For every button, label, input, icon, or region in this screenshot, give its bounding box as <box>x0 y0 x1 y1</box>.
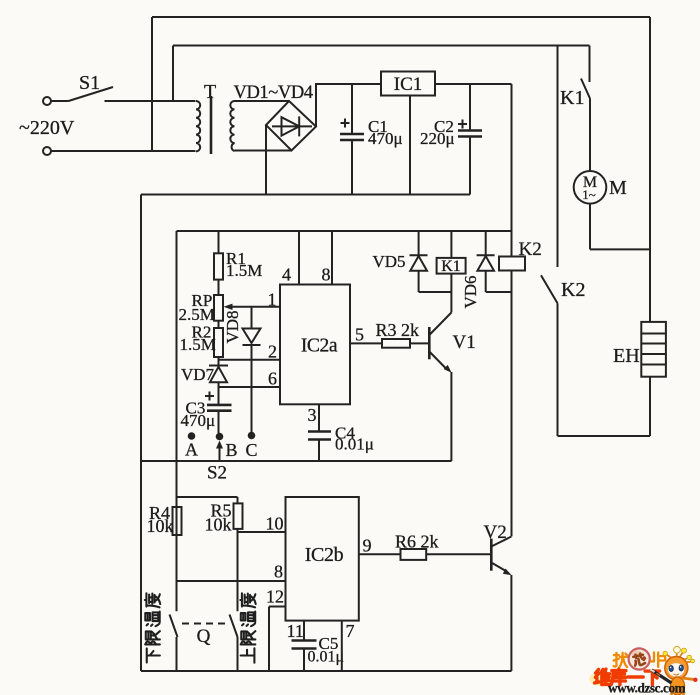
svg-text:470μ: 470μ <box>368 129 403 148</box>
svg-text:B: B <box>225 440 237 460</box>
svg-text:C: C <box>245 440 257 460</box>
svg-text:10k: 10k <box>205 515 232 535</box>
svg-text:K2: K2 <box>519 239 542 260</box>
svg-text:VD5: VD5 <box>373 252 406 271</box>
svg-text:11: 11 <box>287 621 304 641</box>
svg-text:0.01μ: 0.01μ <box>308 649 345 666</box>
svg-text:IC1: IC1 <box>394 74 423 95</box>
svg-text:S1: S1 <box>79 72 100 94</box>
svg-text:12: 12 <box>266 587 284 607</box>
svg-text:9: 9 <box>363 536 372 556</box>
svg-text:A: A <box>185 440 198 460</box>
svg-text:T: T <box>204 81 216 103</box>
svg-text:2: 2 <box>268 342 277 362</box>
svg-text:Q: Q <box>197 626 211 647</box>
svg-text:2.5M: 2.5M <box>179 305 215 324</box>
svg-text:4: 4 <box>282 265 291 285</box>
svg-text:EH: EH <box>613 345 640 367</box>
svg-text:www.dzsc.com: www.dzsc.com <box>608 681 686 695</box>
svg-text:R3 2k: R3 2k <box>376 320 420 340</box>
svg-text:10: 10 <box>266 514 284 534</box>
svg-text:470μ: 470μ <box>181 411 216 430</box>
svg-text:~220V: ~220V <box>19 117 75 139</box>
svg-text:5: 5 <box>355 325 364 345</box>
svg-text:IC2a: IC2a <box>301 336 338 357</box>
svg-text:IC2b: IC2b <box>305 544 344 566</box>
svg-text:S2: S2 <box>207 463 227 484</box>
svg-text:7: 7 <box>346 621 355 641</box>
svg-text:3: 3 <box>308 405 317 425</box>
svg-text:K2: K2 <box>561 279 585 301</box>
svg-text:0.01μ: 0.01μ <box>335 435 374 454</box>
svg-text:10k: 10k <box>147 516 174 536</box>
svg-text:1.5M: 1.5M <box>180 335 216 354</box>
svg-text:220μ: 220μ <box>420 129 455 148</box>
svg-text:VD7: VD7 <box>181 365 215 384</box>
svg-text:V2: V2 <box>484 522 507 543</box>
svg-text:1~: 1~ <box>582 187 596 202</box>
svg-text:V1: V1 <box>453 332 476 353</box>
svg-text:R6 2k: R6 2k <box>395 532 439 552</box>
svg-text:VD1~VD4: VD1~VD4 <box>234 83 313 103</box>
svg-text:1: 1 <box>268 290 277 310</box>
svg-text:K1: K1 <box>441 258 461 275</box>
svg-text:8: 8 <box>322 265 331 285</box>
svg-text:8: 8 <box>274 562 283 582</box>
svg-text:K1: K1 <box>560 87 584 109</box>
svg-text:6: 6 <box>268 369 277 389</box>
svg-text:VD8: VD8 <box>223 310 242 343</box>
svg-text:1.5M: 1.5M <box>226 261 262 280</box>
svg-text:VD6: VD6 <box>461 275 480 308</box>
svg-text:M: M <box>609 177 627 199</box>
